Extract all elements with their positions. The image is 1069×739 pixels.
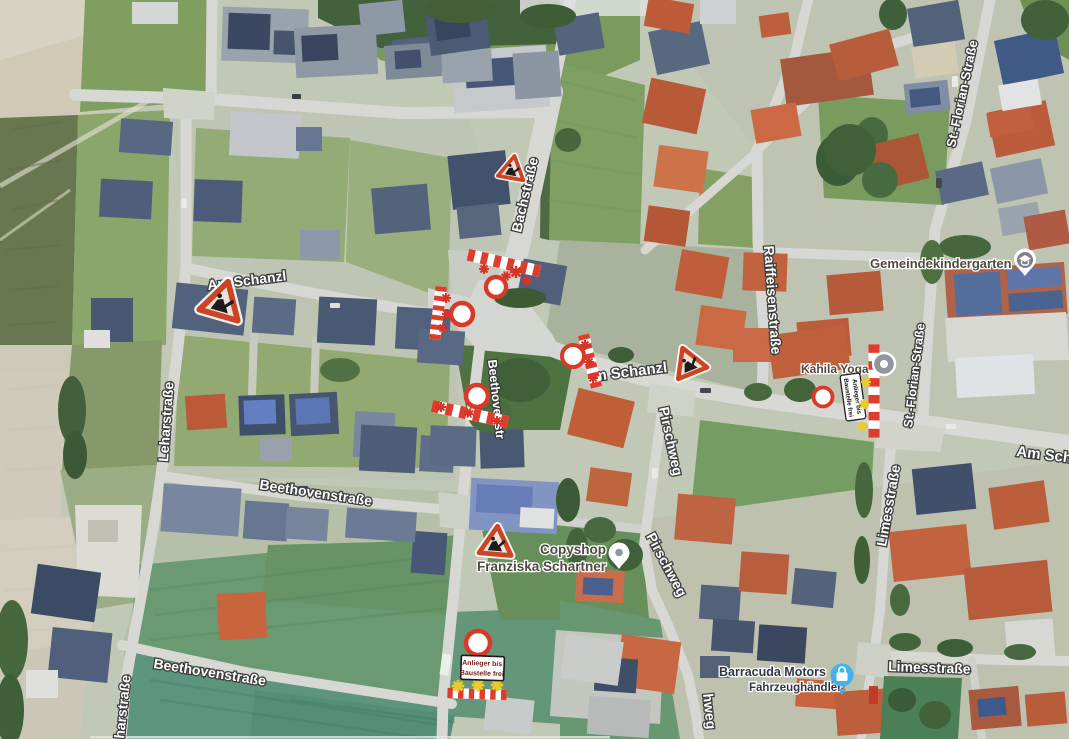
svg-text:Gemeindekindergarten: Gemeindekindergarten [870, 256, 1012, 271]
svg-text:Barracuda Motors: Barracuda Motors [719, 665, 826, 679]
svg-text:Franziska Schartner: Franziska Schartner [477, 559, 607, 574]
svg-text:Anlieger bis: Anlieger bis [462, 660, 502, 668]
svg-text:Limesstraße: Limesstraße [888, 658, 971, 677]
svg-text:Copyshop: Copyshop [540, 542, 606, 557]
svg-text:Fahrzeughändler: Fahrzeughändler [749, 682, 842, 694]
